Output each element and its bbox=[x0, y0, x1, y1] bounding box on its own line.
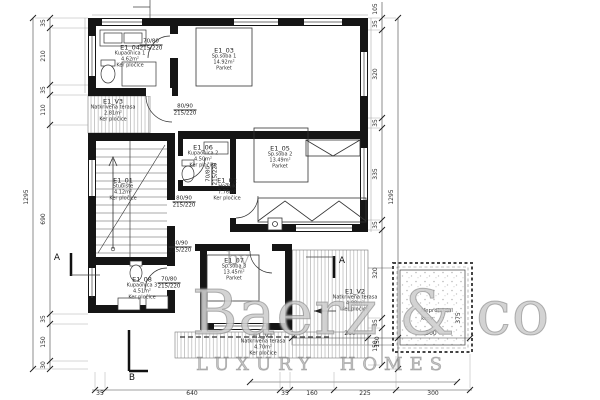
room-label-e1-05: E1_05 Sp.soba 2 13.49m² Parket bbox=[268, 146, 293, 171]
room-label-e1-v2: E1_V2 Natkrivena terasa 4.98m² Ker ploči… bbox=[333, 289, 378, 314]
room-label-e1-01: E1_01 Stubište 4.12m² Ker pločice bbox=[109, 178, 136, 203]
section-label-a-right: A bbox=[339, 256, 345, 266]
door-size-label: 80/90 215/220 bbox=[169, 240, 192, 253]
dim-right: 35 bbox=[373, 119, 379, 127]
section-label-a-left: A bbox=[54, 253, 60, 263]
door-width: 70/80 bbox=[158, 276, 181, 283]
room-floor: Parket bbox=[212, 67, 237, 73]
dim-left: 110 bbox=[41, 104, 47, 115]
dim-roof-height: 375 bbox=[456, 312, 462, 323]
roof-label-line1: Neprohodni bbox=[421, 307, 453, 315]
dim-right: 335 bbox=[373, 168, 379, 179]
dim-right: 35 bbox=[373, 319, 379, 327]
room-floor: Ker pločice bbox=[333, 308, 378, 314]
room-floor: Parket bbox=[222, 277, 247, 283]
dim-left: 210 bbox=[41, 50, 47, 61]
room-label-e1-08: E1_08 Kupaonica 3 4.51m² Ker pločice bbox=[127, 277, 158, 302]
door-height: 215/220 bbox=[140, 46, 163, 52]
door-size-label: 80/90 215/220 bbox=[174, 103, 197, 116]
door-size-label: 70/80 215/220 bbox=[158, 276, 181, 289]
door-width: 70/80 bbox=[140, 38, 163, 45]
roof-label-line2: krov bbox=[421, 315, 453, 323]
door-size-label: 70/80 215/220 bbox=[205, 163, 218, 186]
dim-bottom: 35 bbox=[96, 391, 104, 397]
section-label-b: B bbox=[129, 373, 135, 383]
dim-mid: 300 bbox=[425, 331, 436, 337]
room-floor: Ker pločice bbox=[127, 296, 158, 302]
dim-bottom: 35 bbox=[281, 391, 289, 397]
door-width: 80/90 bbox=[173, 195, 196, 202]
dim-bottom: 160 bbox=[306, 391, 317, 397]
door-size-label: 70/80 215/220 bbox=[140, 38, 163, 51]
room-label-e1-07: E1_07 Sp.soba 3 13.45m² Parket bbox=[222, 258, 247, 283]
room-floor: Ker pločice bbox=[213, 197, 240, 203]
room-floor: Ker pločice bbox=[115, 64, 146, 70]
room-floor: Parket bbox=[268, 165, 293, 171]
room-label-e1-03: E1_03 Sp.soba 1 14.92m² Parket bbox=[212, 48, 237, 73]
dim-bottom: 225 bbox=[359, 391, 370, 397]
dim-left-overall: 1295 bbox=[24, 189, 30, 204]
dim-right: 35 bbox=[373, 221, 379, 229]
door-height: 215/220 bbox=[173, 203, 196, 209]
dim-bottom: 300 bbox=[427, 391, 438, 397]
door-size-label: 80/90 215/220 bbox=[173, 195, 196, 208]
dim-right: 320 bbox=[373, 267, 379, 278]
dim-left: 150 bbox=[41, 336, 47, 347]
door-width: 80/90 bbox=[174, 103, 197, 110]
room-floor: Ker pločice bbox=[241, 352, 286, 358]
dim-right: 320 bbox=[373, 68, 379, 79]
door-height: 215/220 bbox=[158, 284, 181, 290]
door-height: 215/220 bbox=[213, 163, 219, 186]
roof-area bbox=[368, 263, 472, 352]
door-height: 215/220 bbox=[174, 111, 197, 117]
room-label-e1-v3: E1_V3 Natkrivena terasa 2.81m² Ker ploči… bbox=[91, 99, 136, 124]
dim-right-overall: 1295 bbox=[389, 189, 395, 204]
dim-left: 30 bbox=[41, 361, 47, 369]
dim-left: 35 bbox=[41, 315, 47, 323]
door-width: 80/90 bbox=[169, 240, 192, 247]
dim-bottom: 640 bbox=[186, 391, 197, 397]
room-label-e1-v1: E1_V1 Natkrivena terasa 4.70m² Ker ploči… bbox=[241, 333, 286, 358]
dim-left: 35 bbox=[41, 86, 47, 94]
dim-left: 35 bbox=[41, 19, 47, 27]
dim-left: 690 bbox=[41, 213, 47, 224]
dim-right: 35 bbox=[373, 20, 379, 28]
dim-mid: 150 bbox=[375, 336, 381, 347]
floor-plan-page: E1_04 Kupaonica 1 4.62m² Ker pločice E1_… bbox=[0, 0, 600, 400]
door-height: 215/220 bbox=[169, 248, 192, 254]
dim-mid: 260 bbox=[344, 331, 355, 337]
room-floor: Ker pločice bbox=[91, 118, 136, 124]
floor-plan-drawing bbox=[0, 0, 600, 400]
room-floor: Ker pločice bbox=[109, 197, 136, 203]
door-width: 70/80 bbox=[205, 163, 212, 186]
roof-label: Neprohodni krov bbox=[421, 307, 453, 324]
dim-right: 105 bbox=[373, 3, 379, 14]
